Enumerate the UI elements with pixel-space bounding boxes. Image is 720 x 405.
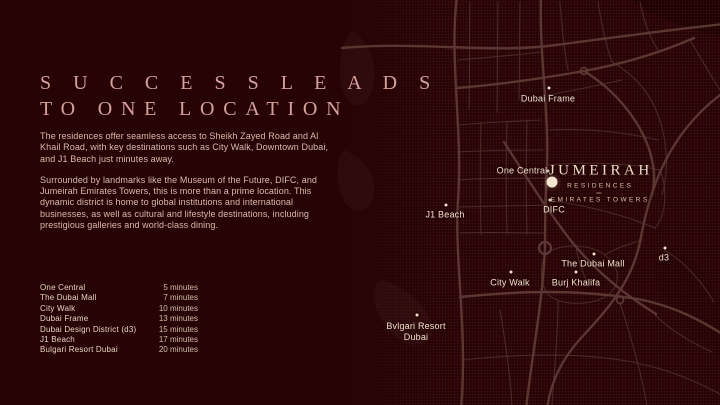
body-copy: The residences offer seamless access to … [40, 131, 336, 241]
headline-line-2: TO ONE LOCATION [40, 96, 439, 122]
destination-name: One Central [40, 283, 85, 293]
list-item: The Dubai Mall7 minutes [40, 293, 198, 303]
destination-name: The Dubai Mall [40, 293, 97, 303]
brochure-slide: Dubai FrameOne CentralDIFCJ1 BeachCity W… [0, 0, 720, 405]
list-item: J1 Beach17 minutes [40, 335, 198, 345]
map-poi-dot [510, 271, 513, 274]
destination-time: 13 minutes [159, 314, 198, 324]
destination-time: 20 minutes [159, 345, 198, 355]
brand-title: JUMEIRAH [549, 163, 653, 180]
map-poi-label: d3 [659, 253, 669, 264]
list-item: Dubai Frame13 minutes [40, 314, 198, 324]
list-item: City Walk10 minutes [40, 304, 198, 314]
map-poi-dot [593, 253, 596, 256]
destination-time: 15 minutes [159, 325, 198, 335]
jumeirah-brand-block: JUMEIRAH RESIDENCES EMIRATES TOWERS [545, 163, 652, 204]
headline: S U C C E S S L E A D S TO ONE LOCATION [40, 70, 439, 122]
list-item: Dubai Design District (d3)15 minutes [40, 325, 198, 335]
map-poi-label: City Walk [490, 278, 529, 289]
destinations-list: One Central5 minutesThe Dubai Mall7 minu… [40, 283, 198, 356]
list-item: Bulgari Resort Dubai20 minutes [40, 345, 198, 355]
destination-time: 10 minutes [159, 304, 198, 314]
destination-name: City Walk [40, 304, 75, 314]
destination-name: Dubai Frame [40, 314, 88, 324]
destination-name: Bulgari Resort Dubai [40, 345, 118, 355]
destination-time: 5 minutes [163, 283, 198, 293]
map-poi-dot [575, 271, 578, 274]
map-poi-label: Dubai Frame [521, 94, 575, 105]
paragraph-access: The residences offer seamless access to … [40, 131, 336, 165]
destination-time: 17 minutes [159, 335, 198, 345]
map-poi-label: Burj Khalifa [552, 278, 600, 289]
destination-name: Dubai Design District (d3) [40, 325, 136, 335]
map-poi-label: DIFC [543, 205, 565, 216]
brand-ornament [597, 193, 602, 194]
destination-name: J1 Beach [40, 335, 75, 345]
brand-subtitle-residences: RESIDENCES [548, 183, 653, 190]
map-poi-label: One Central [497, 166, 548, 177]
map-poi-dot [664, 247, 667, 250]
map-poi-dot [445, 204, 448, 207]
map-poi-dot [548, 87, 551, 90]
map-poi-dot [416, 314, 419, 317]
list-item: One Central5 minutes [40, 283, 198, 293]
map-poi-label: Bvlgari Resort Dubai [386, 321, 445, 343]
headline-line-1: S U C C E S S L E A D S [40, 70, 439, 96]
map-poi-label: J1 Beach [425, 210, 464, 221]
brand-subtitle-emirates-towers: EMIRATES TOWERS [548, 197, 653, 204]
paragraph-landmarks: Surrounded by landmarks like the Museum … [40, 175, 336, 231]
map-poi-label: The Dubai Mall [561, 259, 624, 270]
destination-time: 7 minutes [163, 293, 198, 303]
